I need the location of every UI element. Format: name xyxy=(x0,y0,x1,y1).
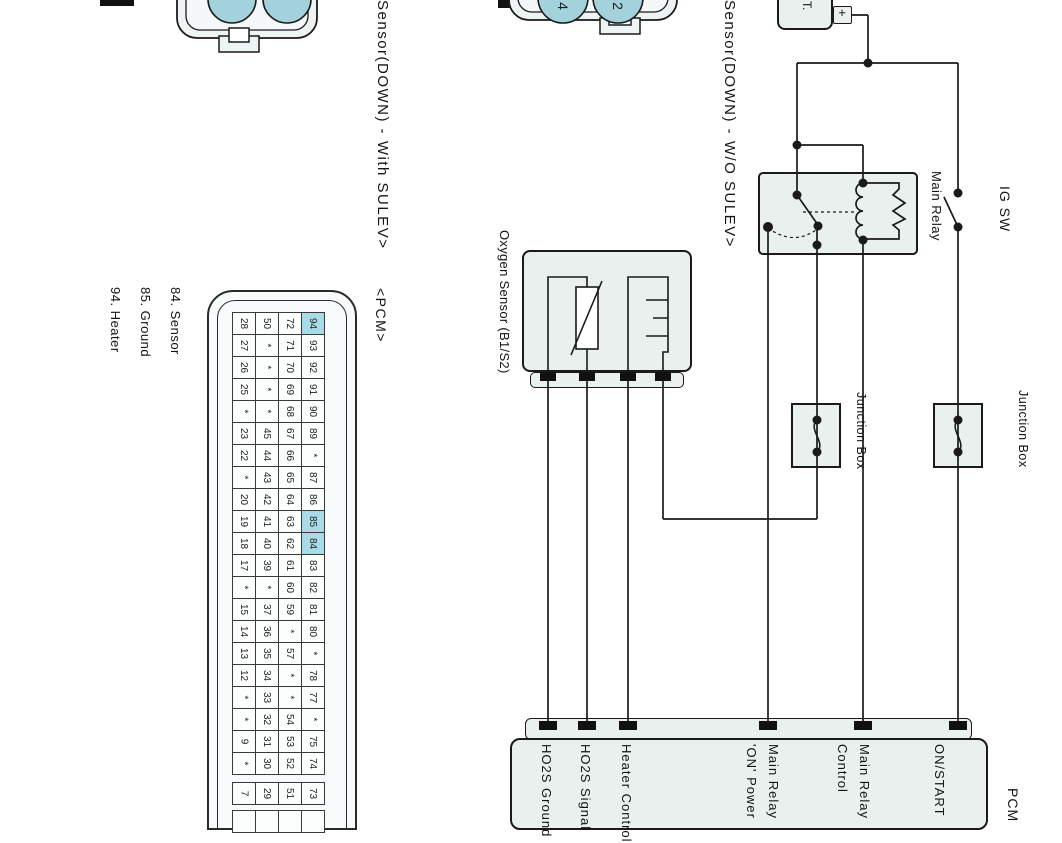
pcm-terminal-label-ho2s-signal: HO2S Signal xyxy=(574,744,596,830)
pcm-name-label: PCM xyxy=(1005,788,1021,822)
pcm-terminal-label-heater-control: Heater Control xyxy=(615,744,637,843)
connector2-pin-4: 4 xyxy=(555,2,571,10)
connector2-pin-2: 2 xyxy=(610,2,626,10)
note-wo-sulev: Sensor(DOWN) - W/O SULEV> xyxy=(721,0,738,248)
connector2-graphic: 4 2 xyxy=(509,0,677,34)
main-relay-symbol xyxy=(768,183,905,239)
junction-box-2-label: Junction Box xyxy=(1016,390,1030,468)
junction-box-1-label: Junction Box xyxy=(854,392,868,470)
pin-legend: 84. Sensor 85. Ground 94. Heater xyxy=(100,287,190,357)
note-with-sulev: Sensor(DOWN) - With SULEV> xyxy=(374,0,391,249)
pcm-terminal-label-on-start: ON/START xyxy=(928,744,950,817)
terminals xyxy=(539,372,967,730)
main-relay-label: Main Relay xyxy=(928,171,943,241)
wiring-diagram-page: { "colors": { "box_fill": "#e9f0ee", "co… xyxy=(0,0,1062,821)
pcm-connector-tag: <PCM> xyxy=(373,288,389,343)
wiring-svg: 4 2 xyxy=(0,0,1062,821)
oxygen-sensor-label: Oxygen Sensor (B1/S2) xyxy=(496,230,511,374)
wires xyxy=(548,15,958,721)
junction-fuse-symbols xyxy=(814,420,961,452)
battery-label: T. xyxy=(799,1,813,10)
pcm-terminal-label-main-relay-control: Main Relay Control xyxy=(831,744,875,819)
ig-switch-label: IG SW xyxy=(997,186,1013,232)
oxygen-sensor-elements xyxy=(548,277,668,372)
connector1-graphic xyxy=(177,0,317,52)
battery-plus-label: + xyxy=(834,9,849,17)
ig-switch-symbol xyxy=(944,197,958,227)
pcm-terminal-label-main-relay-on-power: Main Relay 'ON' Power xyxy=(740,744,784,819)
pcm-terminal-label-ho2s-ground: HO2S Ground xyxy=(535,744,557,837)
